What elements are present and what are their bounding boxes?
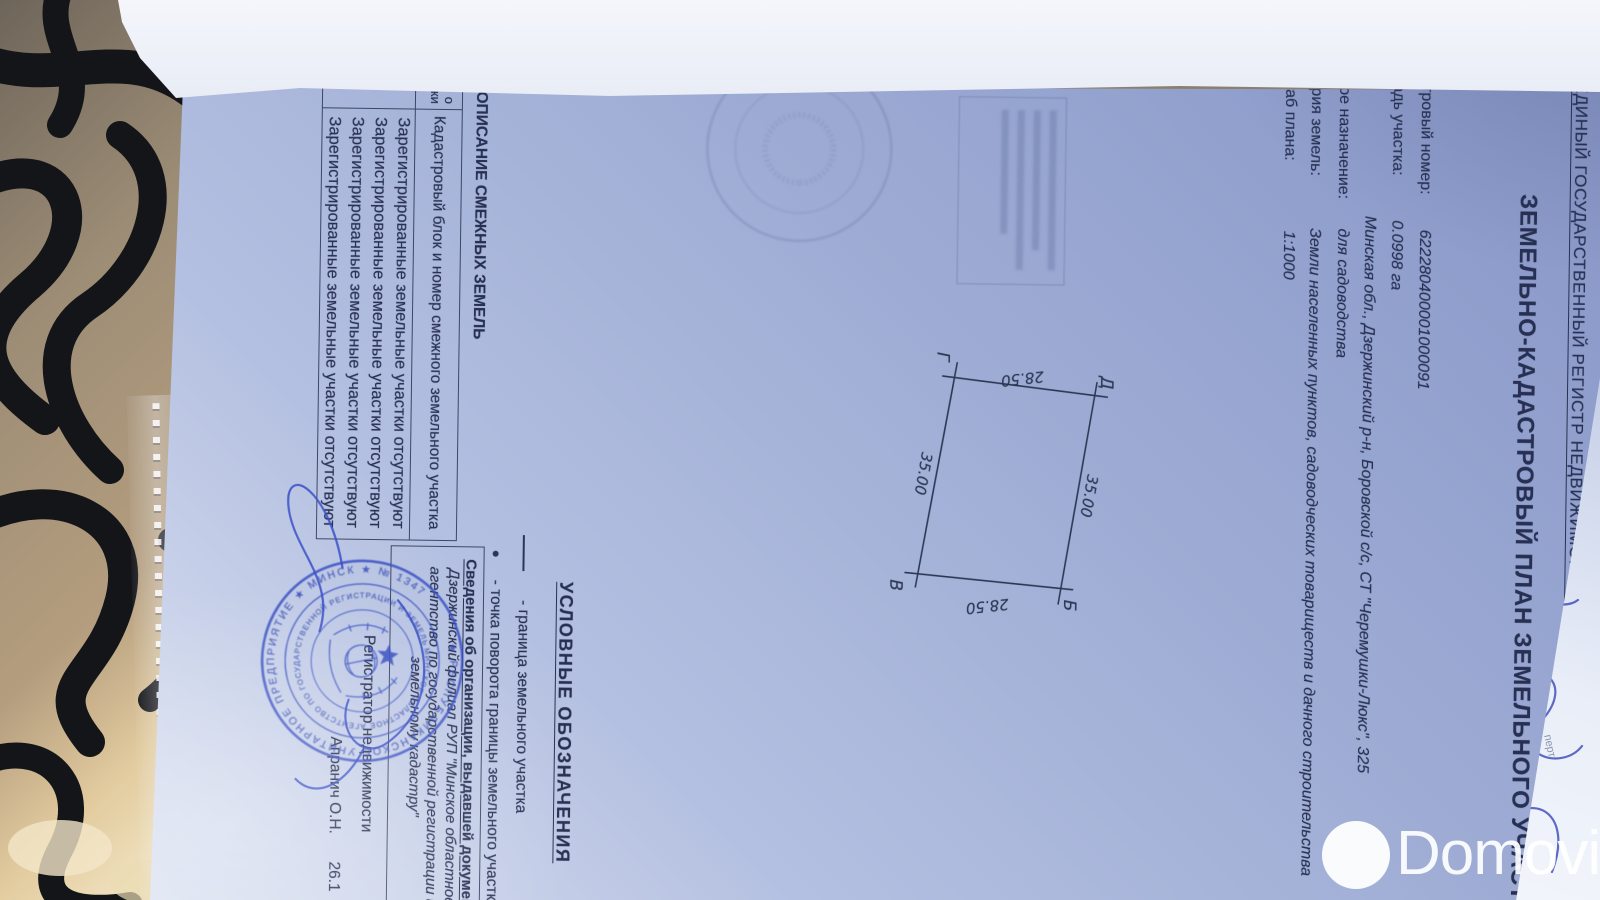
parcel-plan-drawing: Д Б В Г 35.00 28.50 35.00 28.50 xyxy=(859,339,1145,655)
dimension-left: 28.50 xyxy=(1000,367,1045,390)
handwritten-signature xyxy=(256,448,462,900)
dimension-bottom: 35.00 xyxy=(911,451,936,496)
boundary-line-symbol xyxy=(522,535,525,571)
cadastral-plan-document: ЕДИНЫЙ ГОСУДАРСТВЕННЫЙ РЕГИСТР НЕДВИЖИМО… xyxy=(140,0,1600,900)
turning-point-symbol xyxy=(493,551,499,557)
legend-item-boundary: - граница земельного участка xyxy=(511,600,532,814)
field-value-cadastral-number: 622280400001000091 xyxy=(1413,230,1433,390)
field-value-scale: 1:1000 xyxy=(1279,231,1298,280)
faint-rectangular-stamp xyxy=(956,96,1067,285)
domovita-logo-mark xyxy=(1322,821,1390,889)
document-page: ЕДИНЫЙ ГОСУДАРСТВЕННЫЙ РЕГИСТР НЕДВИЖИМО… xyxy=(0,0,1600,900)
legend-title: УСЛОВНЫЕ ОБОЗНАЧЕНИЯ xyxy=(551,548,577,898)
field-value-land-category: Земли населенных пунктов, садоводческих … xyxy=(1296,228,1323,876)
legend-item-turning-point: - точка поворота границы земельного учас… xyxy=(482,580,505,900)
dimension-right: 28.50 xyxy=(965,595,1010,618)
corner-label: Д xyxy=(1096,375,1116,390)
domovita-watermark-text: Domovita xyxy=(1396,818,1600,890)
field-value-area: 0.0998 га xyxy=(1386,220,1405,290)
corner-label: Г xyxy=(932,352,952,363)
corner-label: Б xyxy=(1059,600,1079,612)
field-value-purpose: для садоводства xyxy=(1331,228,1351,358)
photo-of-cadastral-document: перт ст ЕДИНЫЙ ГОСУДАРСТВЕННЫЙ РЕГИСТР Н… xyxy=(0,0,1600,900)
adjacent-lands-title: ОПИСАНИЕ СМЕЖНЫХ ЗЕМЕЛЬ xyxy=(466,41,491,541)
field-value-address: Минская обл., Дзержинский р-н, Боровской… xyxy=(1353,216,1379,773)
corner-label: В xyxy=(885,579,905,591)
